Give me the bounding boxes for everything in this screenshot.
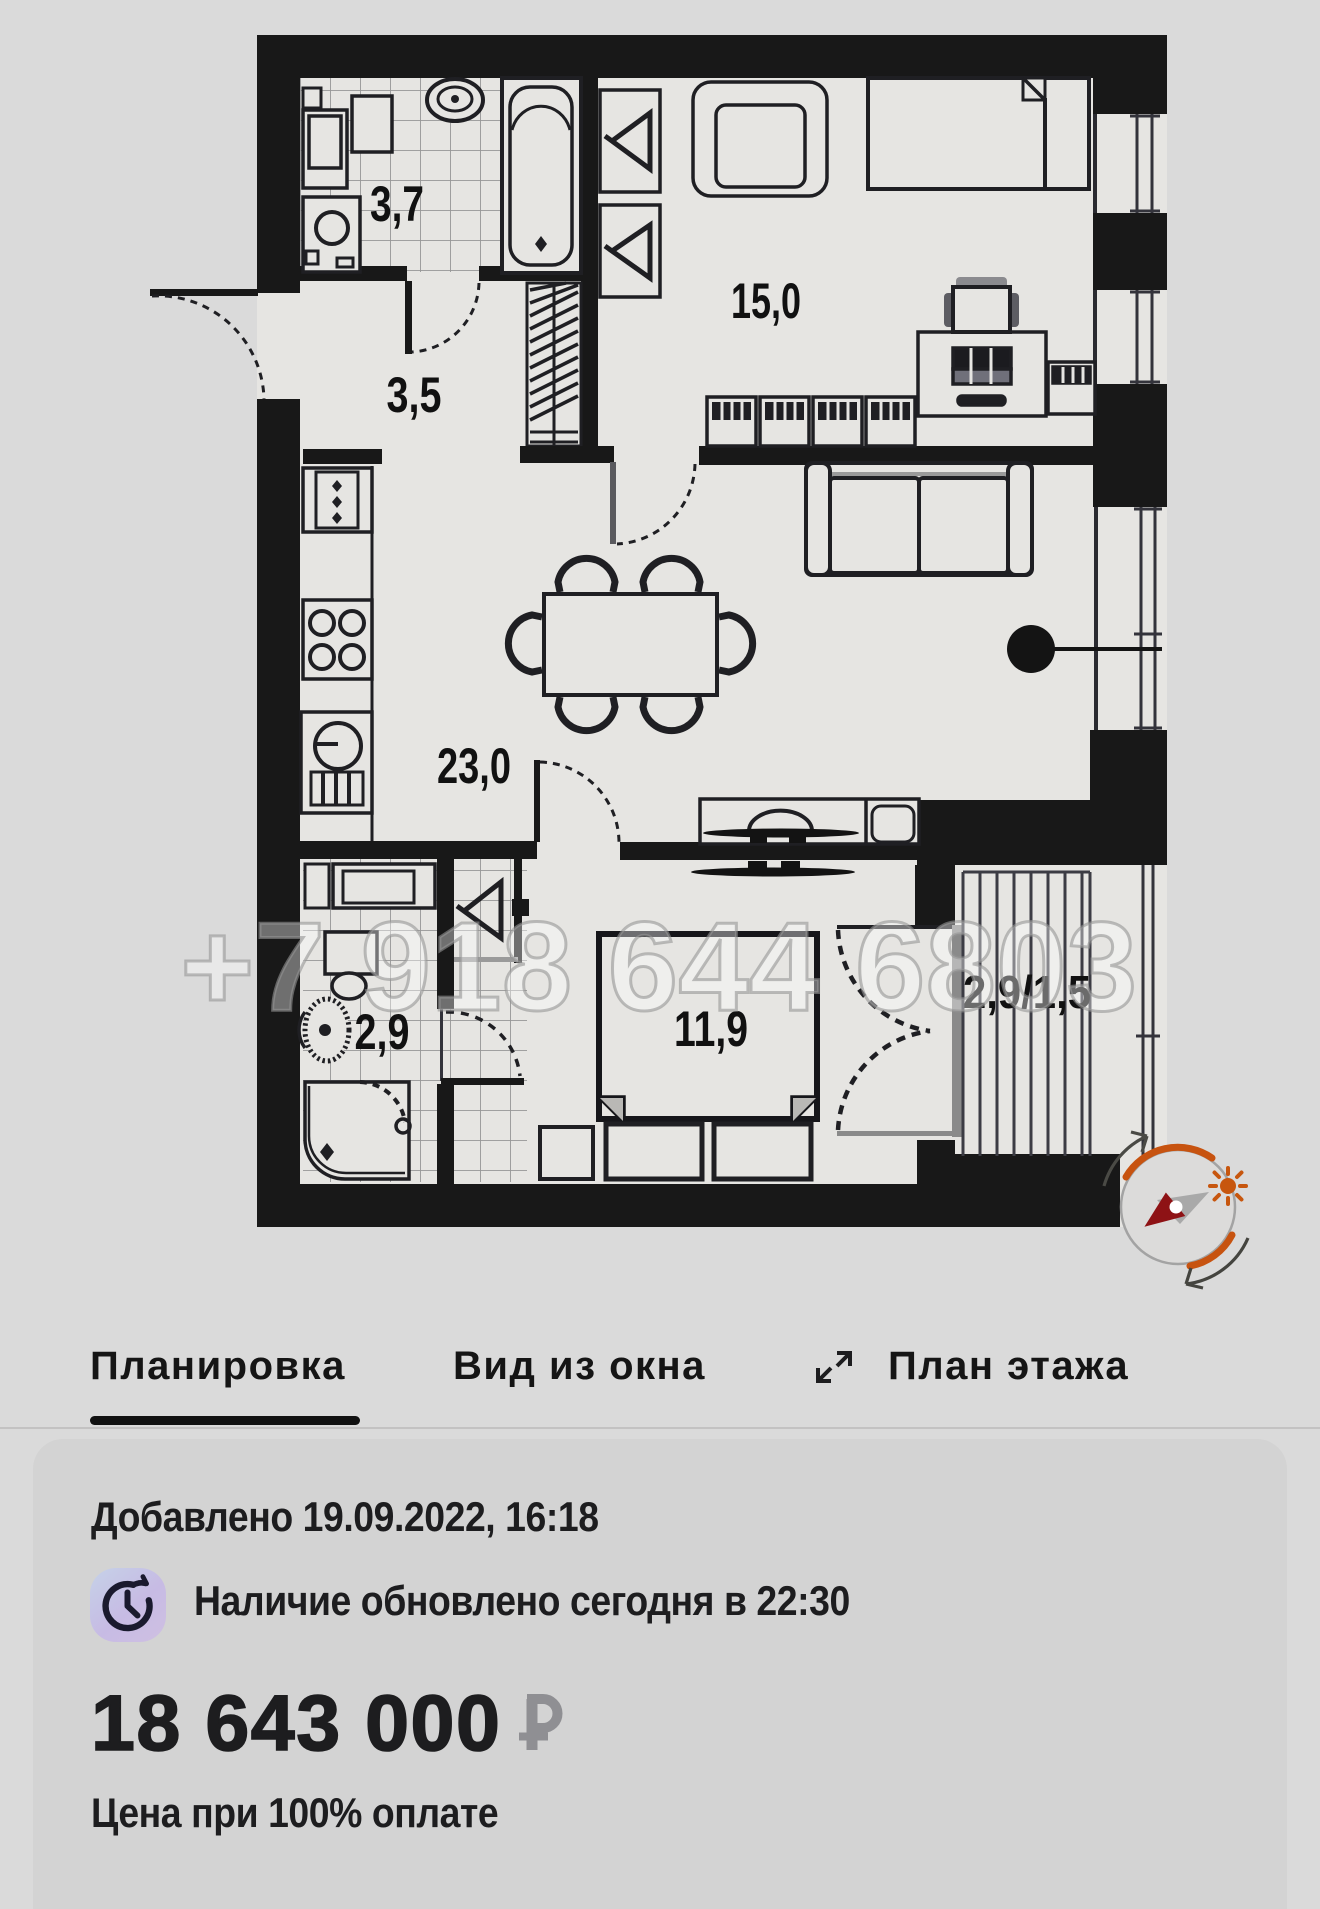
svg-text:+7 918 644 6803: +7 918 644 6803 xyxy=(181,896,1138,1037)
svg-text:15,0: 15,0 xyxy=(731,273,801,329)
svg-text:3,7: 3,7 xyxy=(370,176,424,232)
svg-text:23,0: 23,0 xyxy=(437,738,511,794)
svg-text:3,5: 3,5 xyxy=(387,367,442,423)
